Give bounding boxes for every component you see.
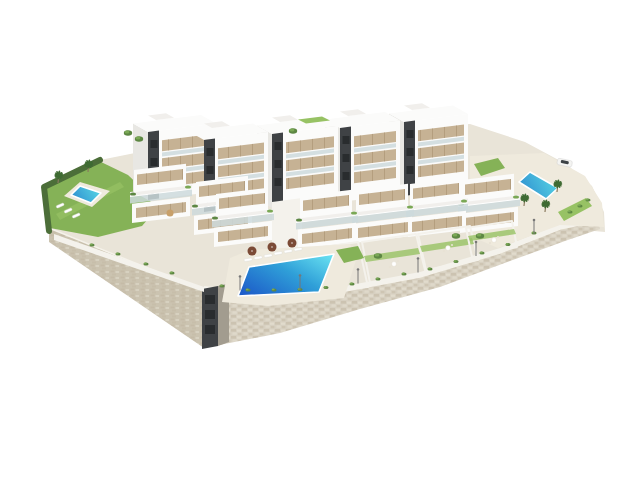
- terraced-unit-1: [130, 164, 192, 223]
- render-canvas: [0, 0, 644, 483]
- patio-table: [392, 262, 397, 267]
- terraced-unit-5: [352, 184, 414, 243]
- patio-table: [492, 238, 497, 243]
- architectural-render: [0, 0, 644, 483]
- patio-table: [446, 246, 451, 251]
- terraced-unit-3: [212, 188, 274, 247]
- parasol: [167, 210, 174, 217]
- terraced-unit-4: [296, 190, 358, 249]
